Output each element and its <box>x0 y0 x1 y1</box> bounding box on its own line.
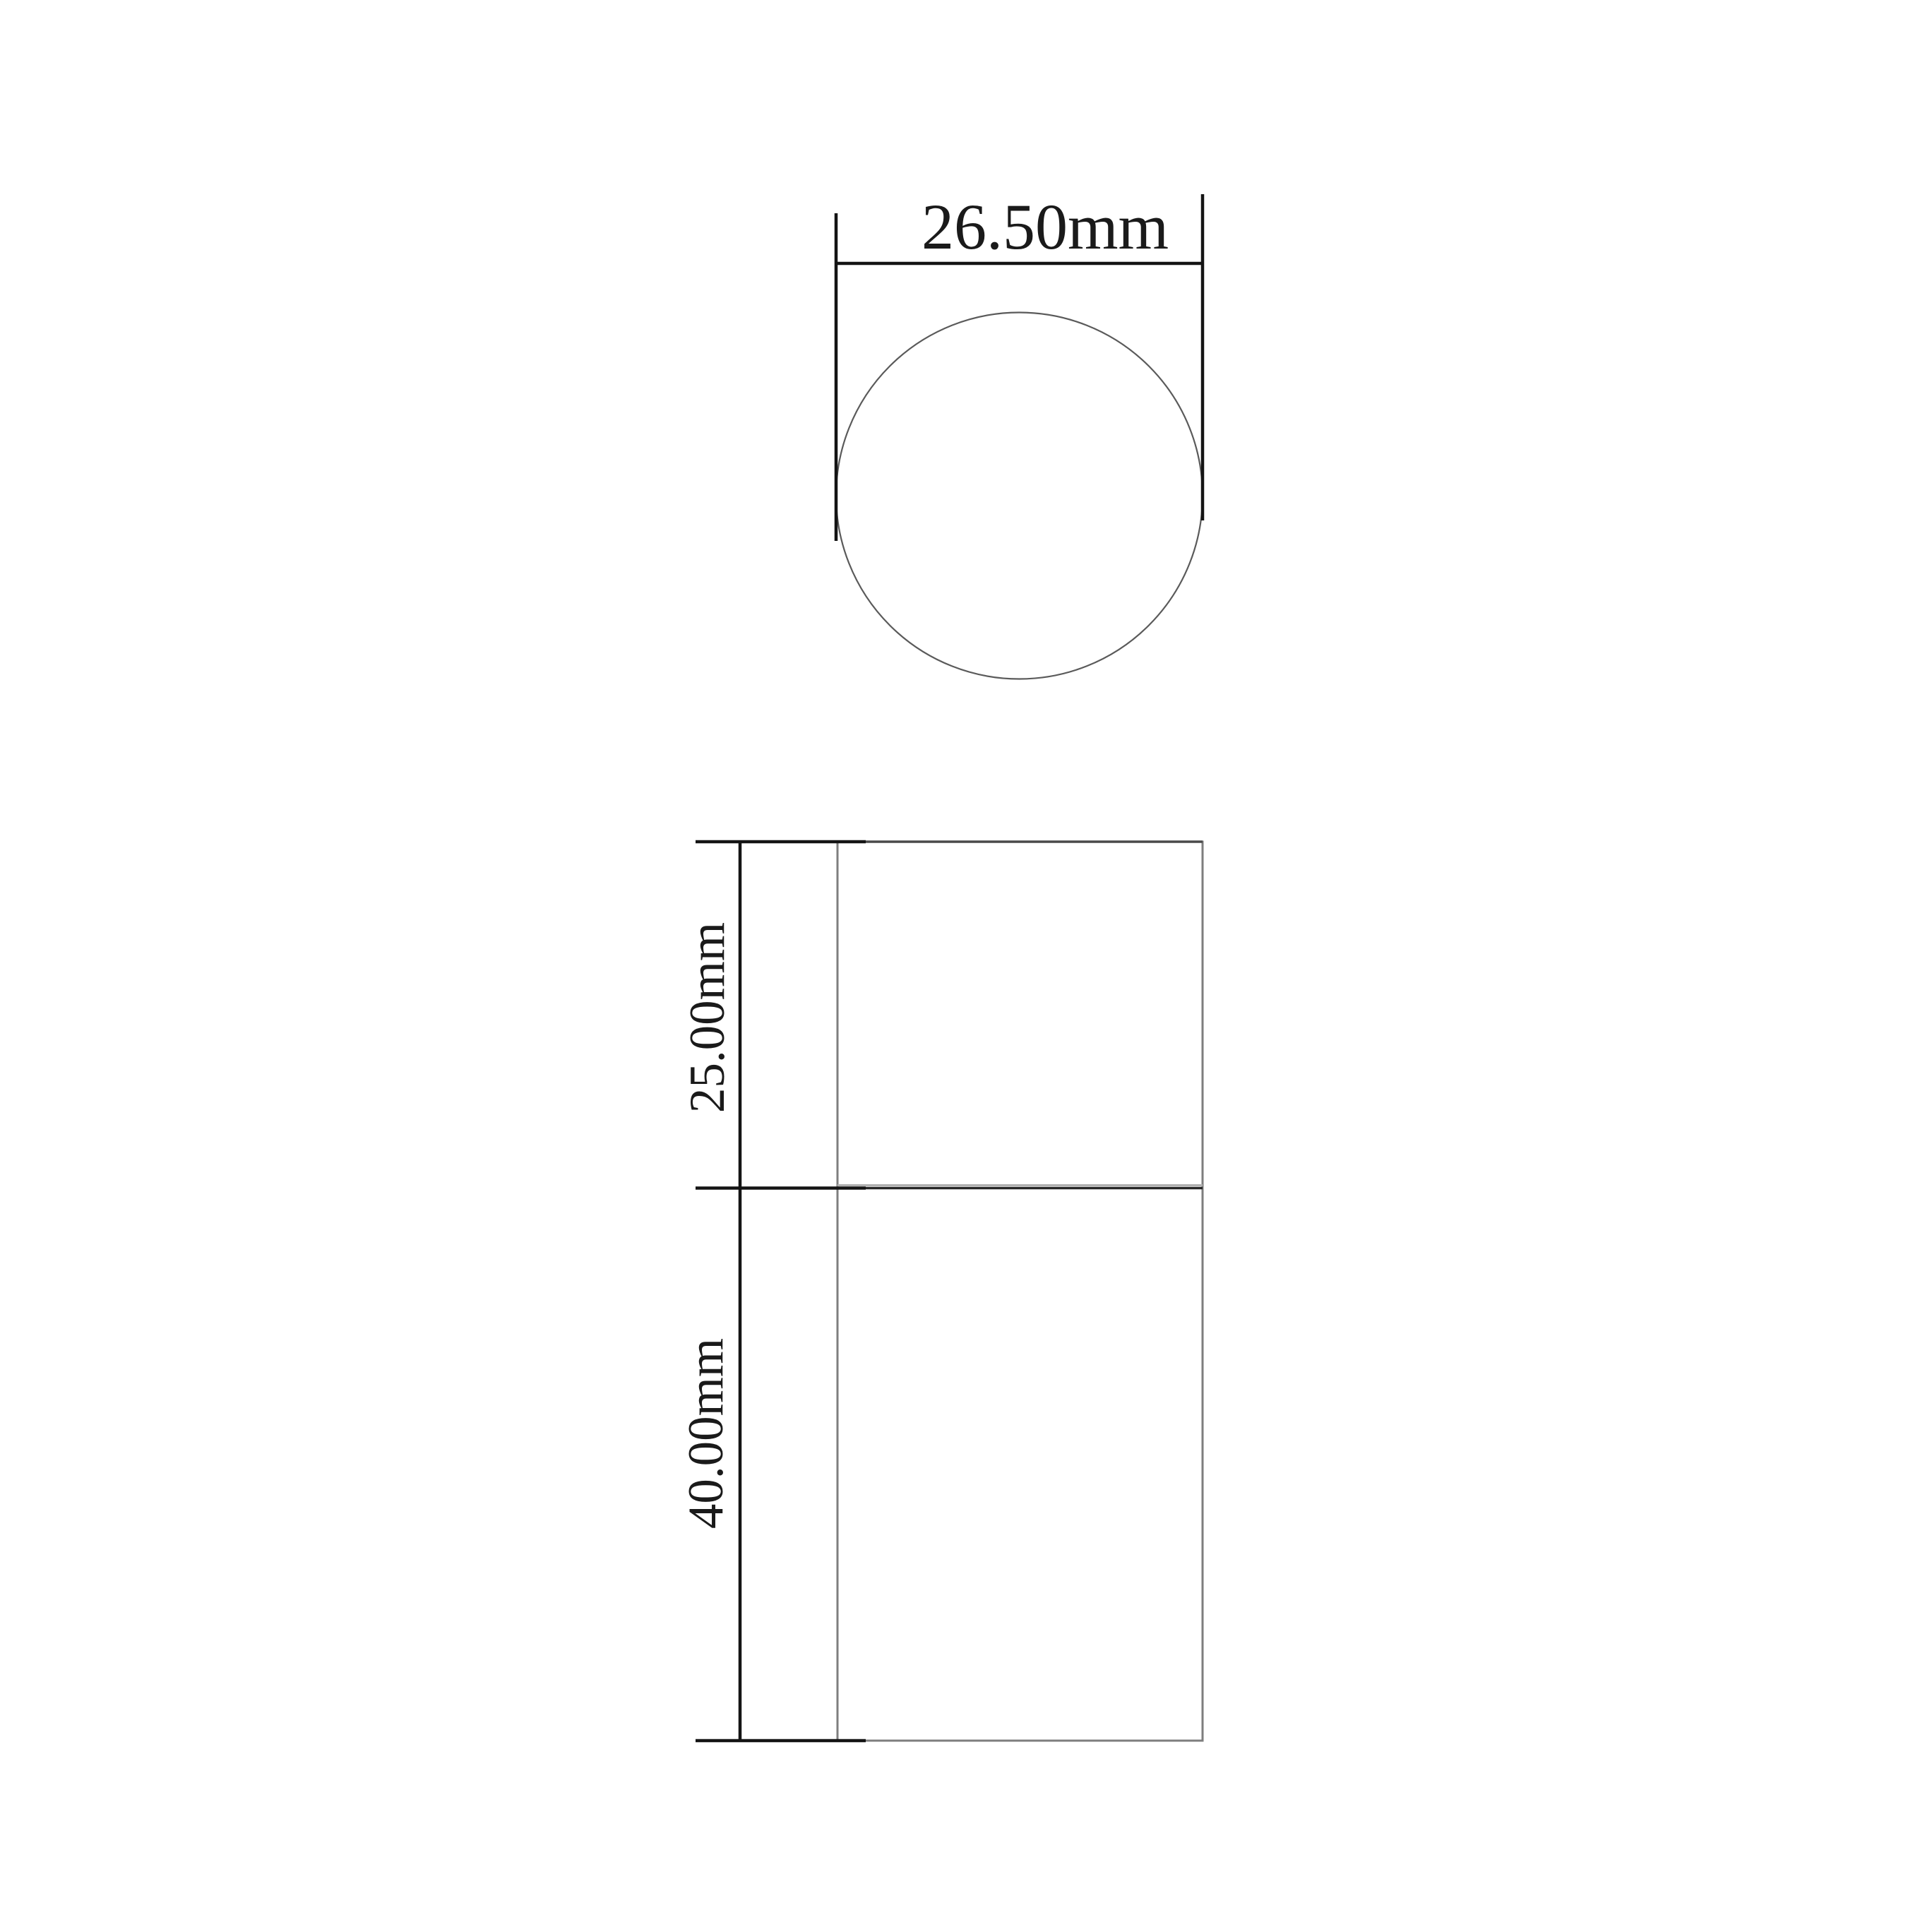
upper-height-label: 25.00mm <box>680 922 735 1113</box>
side-view: 25.00mm 40.00mm <box>679 842 1203 1741</box>
cylinder-body-outline <box>837 842 1203 1741</box>
drawing-canvas: 26.50mm 25.00mm 40.00mm <box>0 0 1932 1932</box>
top-view: 26.50mm <box>836 191 1203 679</box>
lower-height-label: 40.00mm <box>679 1338 734 1529</box>
diameter-label: 26.50mm <box>922 191 1169 263</box>
cylinder-top-outline <box>836 313 1203 679</box>
